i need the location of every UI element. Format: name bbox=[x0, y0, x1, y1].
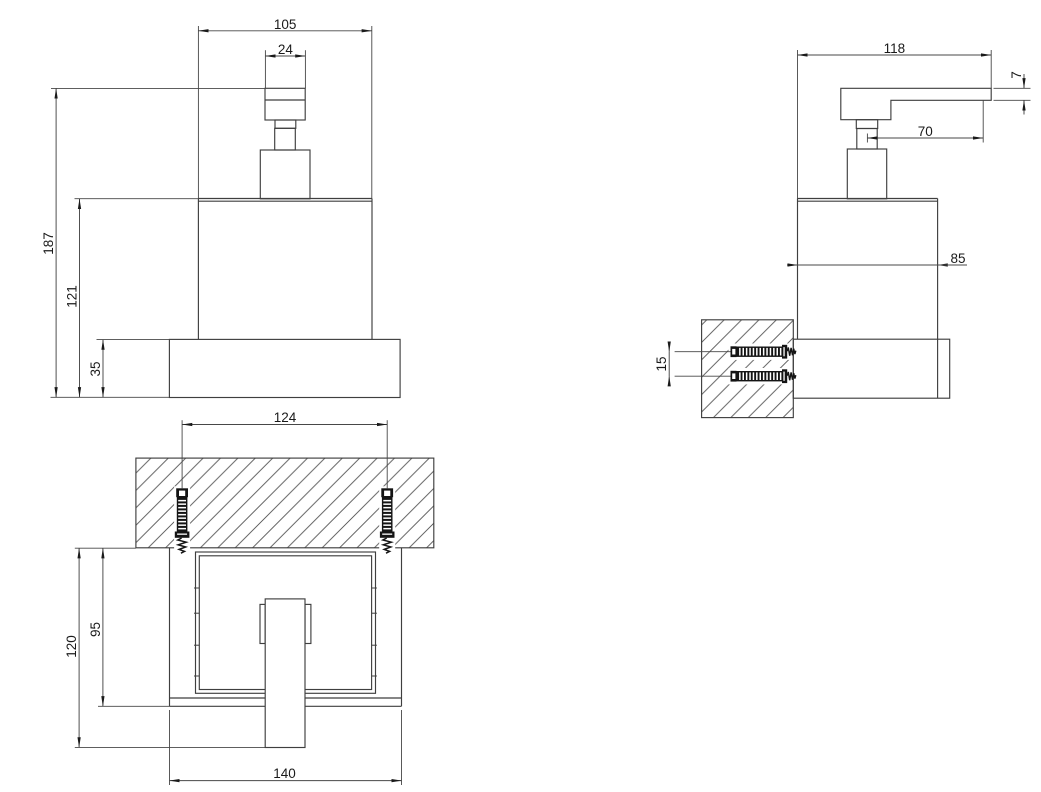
svg-text:121: 121 bbox=[65, 285, 80, 308]
svg-text:105: 105 bbox=[274, 17, 297, 32]
svg-text:7: 7 bbox=[1009, 71, 1024, 79]
svg-text:15: 15 bbox=[654, 356, 669, 371]
svg-text:85: 85 bbox=[950, 251, 965, 266]
svg-text:124: 124 bbox=[274, 410, 297, 425]
svg-text:70: 70 bbox=[918, 124, 933, 139]
svg-text:24: 24 bbox=[278, 42, 294, 57]
svg-text:35: 35 bbox=[88, 361, 103, 376]
svg-text:120: 120 bbox=[64, 635, 79, 658]
svg-text:140: 140 bbox=[273, 766, 296, 781]
svg-text:187: 187 bbox=[41, 232, 56, 255]
svg-text:95: 95 bbox=[88, 622, 103, 637]
svg-text:118: 118 bbox=[884, 41, 906, 56]
